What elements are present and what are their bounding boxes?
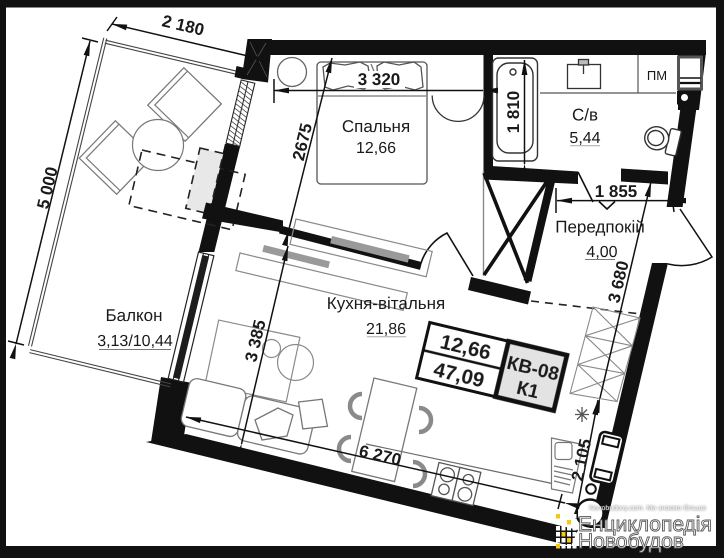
svg-text:3 320: 3 320 (358, 70, 401, 89)
svg-text:Передпокій: Передпокій (555, 218, 645, 237)
svg-text:ПМ: ПМ (647, 68, 667, 83)
svg-text:12,66: 12,66 (356, 140, 396, 157)
svg-text:С/в: С/в (572, 106, 598, 125)
svg-text:Спальня: Спальня (342, 117, 410, 136)
svg-text:3,13/10,44: 3,13/10,44 (97, 333, 173, 350)
svg-text:21,86: 21,86 (366, 321, 406, 338)
svg-text:Балкон: Балкон (105, 306, 162, 325)
svg-text:Кухня-вітальня: Кухня-вітальня (327, 294, 445, 313)
svg-text:1 810: 1 810 (504, 91, 523, 134)
svg-text:4,00: 4,00 (586, 244, 617, 261)
svg-text:5,44: 5,44 (569, 130, 600, 147)
svg-text:1 855: 1 855 (595, 182, 638, 201)
